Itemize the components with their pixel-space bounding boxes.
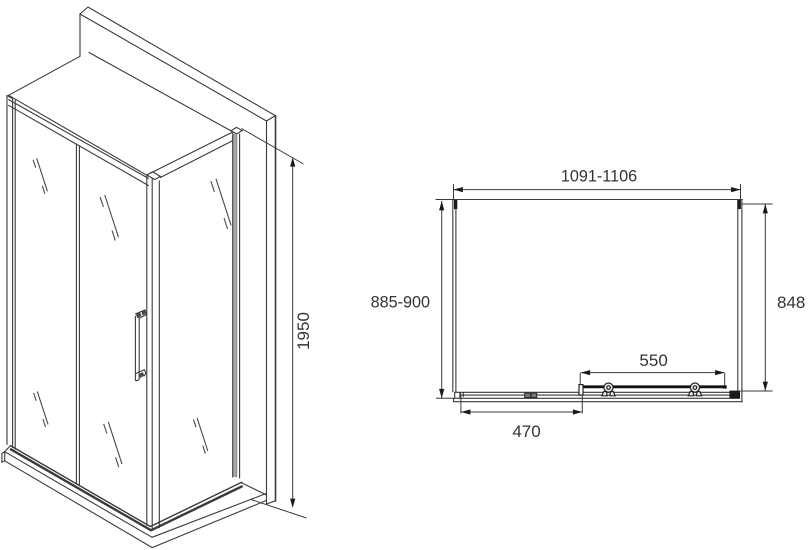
svg-text:550: 550 [639,351,667,370]
svg-text:848: 848 [777,293,805,312]
svg-text:1091-1106: 1091-1106 [561,168,637,186]
svg-text:470: 470 [512,422,540,441]
svg-text:885-900: 885-900 [371,294,430,312]
svg-text:1950: 1950 [294,312,313,350]
